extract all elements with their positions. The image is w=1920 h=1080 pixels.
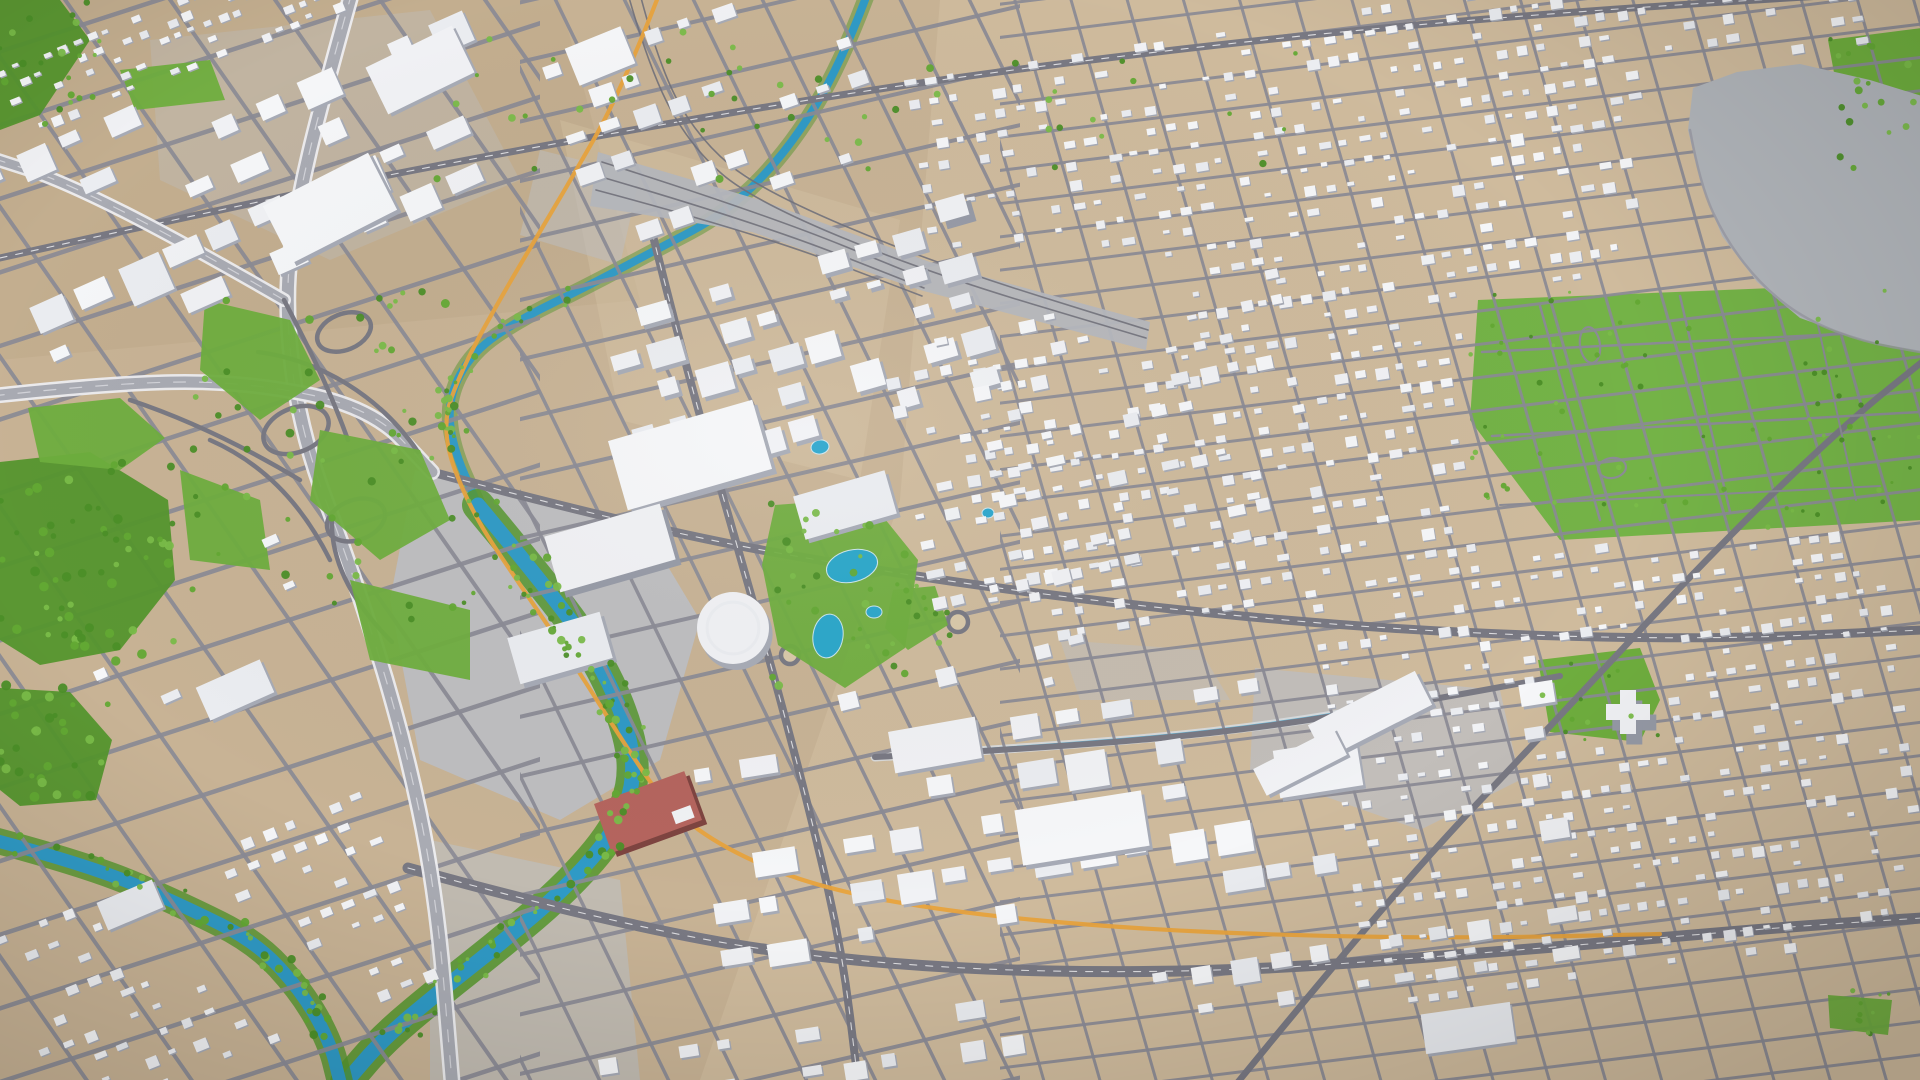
vignette-layer xyxy=(0,0,1920,1080)
city-3d-map-render xyxy=(0,0,1920,1080)
city-3d-map-viewport xyxy=(0,0,1920,1080)
